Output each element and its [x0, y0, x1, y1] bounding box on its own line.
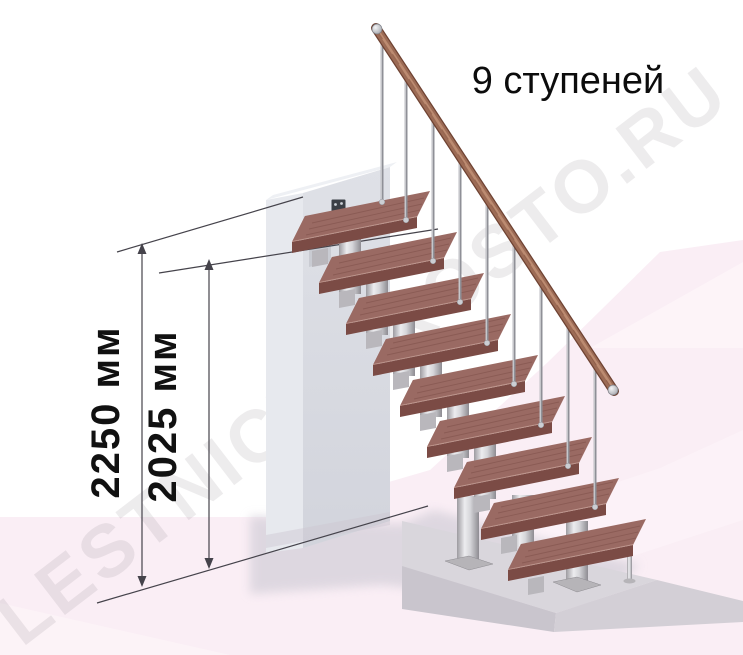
tread-bracket — [447, 453, 463, 472]
tread-bracket — [420, 412, 436, 431]
baluster-foot — [592, 504, 598, 510]
bottom-step-foot — [624, 579, 636, 584]
baluster-foot — [484, 340, 490, 346]
tread-bracket — [501, 535, 517, 554]
scene-svg: LESTNICY-PROSTO.RU — [0, 0, 743, 655]
title-text: 9 ступеней — [472, 60, 665, 102]
dimension-label-2250: 2250 мм — [84, 325, 128, 498]
handrail-top-cap — [372, 24, 382, 34]
baluster-foot — [403, 217, 409, 223]
baluster-foot — [565, 463, 571, 469]
handrail-end-cap — [608, 385, 618, 395]
tread-bracket — [393, 371, 409, 390]
tread-bracket — [528, 576, 544, 595]
staircase-illustration: LESTNICY-PROSTO.RU — [0, 0, 743, 655]
baluster-foot — [457, 299, 463, 305]
dimension-label-2025: 2025 мм — [141, 329, 185, 502]
baluster-foot — [538, 422, 544, 428]
baluster-foot — [379, 199, 385, 205]
baluster-foot — [511, 381, 517, 387]
tread-bracket — [339, 289, 355, 308]
baluster-foot — [430, 258, 436, 264]
tread-bracket — [474, 494, 490, 513]
tread-bracket — [366, 330, 382, 349]
tread-bracket — [312, 248, 328, 267]
